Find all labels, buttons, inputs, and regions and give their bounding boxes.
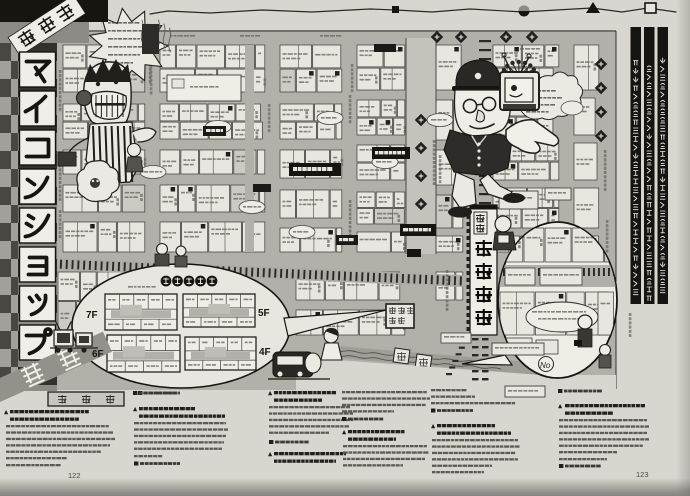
- svg-text:No: No: [540, 361, 551, 370]
- svg-text:7F: 7F: [86, 310, 98, 321]
- svg-text:123: 123: [636, 470, 649, 479]
- svg-text:4F: 4F: [259, 347, 271, 358]
- svg-text:6F: 6F: [92, 349, 104, 360]
- svg-text:5F: 5F: [258, 308, 270, 319]
